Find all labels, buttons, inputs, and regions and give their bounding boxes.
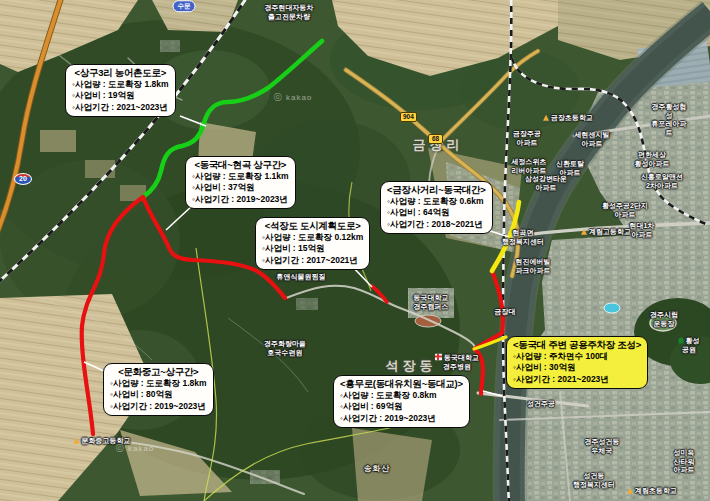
project-box-heungmuro: <흥무로(동대유치원~동대교)> ◦사업량 : 도로확장 0.8km ◦사업비 … [333, 375, 470, 428]
project-box-line: ◦사업비 : 19억원 [72, 90, 169, 102]
project-box-line: ◦사업기간 : 2021~2023년 [72, 102, 169, 114]
project-box-sanggu3ri: <상구3리 농어촌도로> ◦사업량 : 도로확장 1.8km ◦사업비 : 19… [65, 64, 176, 117]
project-box-geumjang-sageori: <금장사거리~동국대간> ◦사업량 : 도로확장 0.6km ◦사업비 : 64… [380, 181, 493, 234]
project-box-line: ◦사업기간 : 2019~2023년 [110, 401, 207, 413]
project-box-line: ◦사업기간 : 2019~2023년 [340, 413, 463, 425]
route-shield-expressway-20: 20 [14, 173, 32, 185]
map-label: 세현센시빌 아파트 [575, 131, 610, 148]
project-box-line: ◦사업기간 : 2021~2023년 [513, 374, 641, 386]
school-icon [74, 438, 80, 444]
map-label: ⓒ kakao [274, 94, 313, 103]
map-label: 동국대학교 경주병원 [435, 354, 479, 371]
project-box-line: ◦사업비 : 69억원 [340, 401, 463, 413]
map-label: 황성공원 [679, 337, 700, 354]
project-box-title: <동국대~현곡 상구간> [192, 159, 289, 171]
school-icon [543, 115, 549, 121]
map-label: 경주황성협성 휴포레아파트 [649, 103, 690, 137]
project-box-dongguk-hyeongok: <동국대~현곡 상구간> ◦사업량 : 도로확장 1.1km ◦사업비 : 37… [185, 156, 296, 209]
route-shield-local-904: 904 [400, 112, 417, 122]
project-box-line: ◦사업비 : 30억원 [513, 362, 641, 374]
map-label: 성건주공 [527, 400, 555, 409]
project-box-line: ◦사업기간 : 2019~2023년 [192, 194, 289, 206]
project-box-seokjangdo: <석장도 도시계획도로> ◦사업량 : 도로확장 0.12km ◦사업비 : 1… [255, 217, 370, 270]
map-label: 편한세상 황성아파트 [635, 151, 670, 168]
project-box-line: ◦사업량 : 도로확장 0.6km [387, 196, 486, 208]
map-label: 성미옥산타워 아파트 [671, 449, 697, 475]
map-label: 성건동 행정복지센터 [573, 472, 615, 489]
map-label: 수문 [173, 0, 196, 12]
map-label: 신흥로얄맨션 2차아파트 [641, 173, 683, 190]
map-label: 황성주공2단지 아파트 [602, 202, 648, 219]
map-label: 석장동 [386, 359, 437, 373]
project-box-title: <문화중고~상구간> [110, 366, 207, 378]
map-label: 금장대 [495, 308, 516, 317]
project-box-line: ◦사업량 : 도로확장 0.8km [340, 390, 463, 402]
map-label: 현대1차 아파트 [630, 222, 655, 239]
project-box-line: ◦사업량 : 도로확장 1.8km [110, 378, 207, 390]
map-label: 삼성강변타운 아파트 [525, 175, 567, 192]
map-label: 경주화랑마을 호국수련원 [264, 340, 306, 357]
map-stage: 수문경주현대자동차 출고전문차량금장초등학교경주황성협성 휴포레아파트금장주공 … [0, 0, 710, 501]
route-shield-local-68: 68 [428, 134, 443, 144]
project-box-title: <흥무로(동대유치원~동대교)> [340, 378, 463, 390]
map-label: 금장주공 아파트 [513, 130, 541, 147]
map-label: 현진에버빌 파크아파트 [516, 258, 551, 275]
project-box-line: ◦사업량 : 도로확장 0.12km [262, 232, 363, 244]
project-box-line: ◦사업비 : 80억원 [110, 389, 207, 401]
project-box-line: ◦사업량 : 도로확장 1.1km [192, 171, 289, 183]
map-label: ⓒ kakao [116, 445, 155, 454]
map-label: 계림고등학교 [581, 228, 631, 237]
project-box-line: ◦사업비 : 37억원 [192, 182, 289, 194]
project-box-title: <상구3리 농어촌도로> [72, 67, 169, 79]
project-box-title: <동국대 주변 공용주차장 조성> [513, 339, 641, 351]
map-label: 현곡면 행정복지센터 [502, 229, 544, 246]
tree-icon [679, 338, 684, 344]
project-box-line: ◦사업비 : 15억원 [262, 243, 363, 255]
project-box-line: ◦사업기간 : 2018~2021년 [387, 219, 486, 231]
school-icon [627, 488, 633, 494]
map-label: 동국대학교 경주캠퍼스 [414, 294, 449, 311]
map-label: 경주시립 운동장 [650, 311, 678, 328]
school-icon [581, 229, 587, 235]
map-label: 경주현대자동차 출고전문차량 [265, 4, 314, 21]
project-box-line: ◦사업량 : 도로확장 1.8km [72, 79, 169, 91]
map-label: 세정스위츠 리버아파트 [512, 158, 547, 175]
project-box-munhwa-sanggu: <문화중고~상구간> ◦사업량 : 도로확장 1.8km ◦사업비 : 80억원… [103, 363, 214, 416]
project-box-parking-highlight: <동국대 주변 공용주차장 조성> ◦사업량 : 주차면수 100대 ◦사업비 … [506, 336, 648, 389]
project-box-title: <금장사거리~동국대간> [387, 184, 486, 196]
project-box-line: ◦사업량 : 주차면수 100대 [513, 351, 641, 363]
map-label: 경주성건동 우체국 [585, 438, 620, 455]
project-box-line: ◦사업기간 : 2017~2021년 [262, 255, 363, 267]
project-box-line: ◦사업비 : 64억원 [387, 207, 486, 219]
map-label: 금장초등학교 [543, 114, 593, 123]
map-label: 계림초등학교 [627, 487, 677, 496]
map-label: 송화산 [364, 465, 391, 474]
project-box-title: <석장도 도시계획도로> [262, 220, 363, 232]
map-label: 휴앤식물원찜질 [277, 273, 326, 282]
